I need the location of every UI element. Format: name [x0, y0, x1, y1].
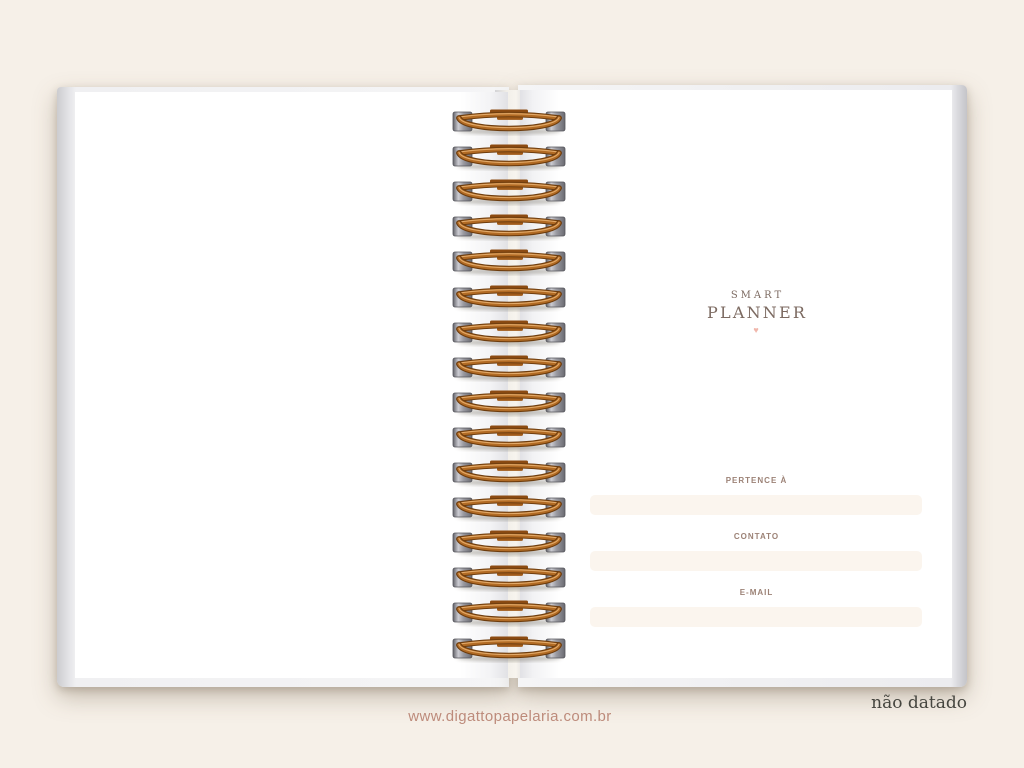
owner-form: PERTENCE À CONTATO E-MAIL: [590, 476, 922, 644]
field-line-email: [590, 607, 922, 627]
field-label-contato: CONTATO: [590, 532, 922, 542]
brand-title-small: SMART: [590, 290, 922, 301]
heart-icon: ♥: [590, 326, 922, 335]
field-label-pertence: PERTENCE À: [590, 476, 922, 486]
field-line-pertence: [590, 495, 922, 515]
form-group-contato: CONTATO: [590, 532, 922, 571]
notebook-mockup: SMART PLANNER ♥ PERTENCE À CONTATO E-MAI…: [0, 0, 1024, 768]
form-group-email: E-MAIL: [590, 588, 922, 627]
right-cover-page: SMART PLANNER ♥ PERTENCE À CONTATO E-MAI…: [520, 90, 952, 678]
brand-title-large: PLANNER: [590, 303, 922, 322]
not-dated-label: não datado: [871, 693, 967, 713]
form-group-pertence: PERTENCE À: [590, 476, 922, 515]
left-blank-page: [75, 92, 508, 678]
field-line-contato: [590, 551, 922, 571]
website-url: www.digattopapelaria.com.br: [408, 708, 611, 725]
brand-logo: SMART PLANNER ♥: [590, 290, 922, 335]
field-label-email: E-MAIL: [590, 588, 922, 598]
